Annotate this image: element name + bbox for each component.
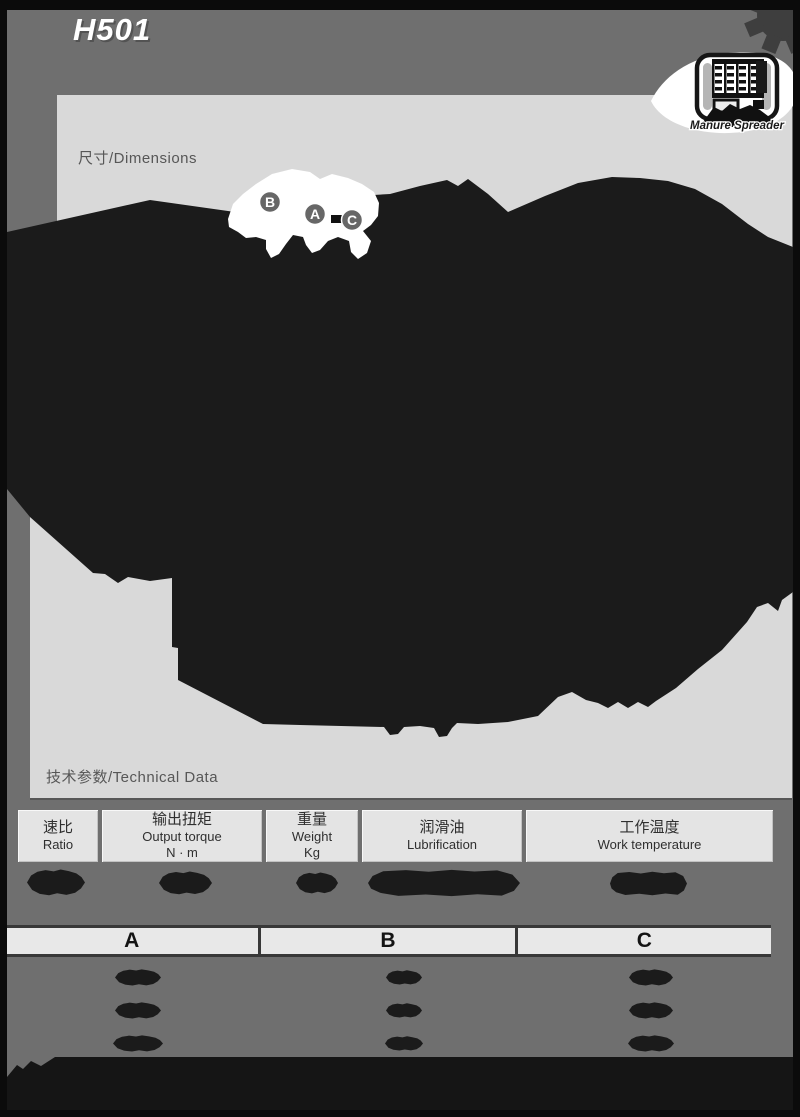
manure-spreader-badge: Manure Spreader xyxy=(651,52,798,133)
frame-left xyxy=(0,0,7,1117)
badge-label: Manure Spreader xyxy=(690,120,784,132)
lub-zh: 润滑油 xyxy=(419,819,464,837)
temp-en: Work temperature xyxy=(598,837,702,853)
weight-unit: Kg xyxy=(304,845,320,861)
callout-a: A xyxy=(305,204,326,225)
redacted-lubrification-value xyxy=(368,869,520,897)
temp-zh: 工作温度 xyxy=(619,819,679,837)
redacted-temperature-value xyxy=(610,871,687,896)
column-header-work-temperature: 工作温度 Work temperature xyxy=(526,810,773,862)
callout-a-label: A xyxy=(310,206,320,222)
callout-c-label: C xyxy=(347,212,357,228)
callout-b: B xyxy=(260,192,281,213)
column-header-lubrification: 润滑油 Lubrification xyxy=(362,810,522,862)
torque-unit: N · m xyxy=(166,845,198,861)
dim-column-b: B xyxy=(258,928,514,954)
dimension-table: A B C xyxy=(5,925,771,957)
weight-zh: 重量 xyxy=(297,811,327,829)
weight-en: Weight xyxy=(292,829,332,845)
bottom-band xyxy=(7,1057,793,1113)
dim-column-c: C xyxy=(515,928,771,954)
torque-zh: 输出扭矩 xyxy=(152,811,212,829)
column-header-output-torque: 输出扭矩 Output torque N · m xyxy=(102,810,262,862)
ratio-zh: 速比 xyxy=(43,819,73,837)
catalog-page: H501 尺寸/Dimensions 技术参数/Technical Data xyxy=(0,0,800,1117)
manure-spreader-icon xyxy=(697,55,777,127)
frame-bottom xyxy=(0,1110,800,1117)
torque-en: Output torque xyxy=(142,829,222,845)
callout-c: C xyxy=(342,210,363,231)
callout-b-label: B xyxy=(265,194,275,210)
dim-column-a: A xyxy=(5,928,258,954)
lub-en: Lubrification xyxy=(407,837,477,853)
ratio-en: Ratio xyxy=(43,837,73,853)
column-header-ratio: 速比 Ratio xyxy=(18,810,98,862)
column-header-weight: 重量 Weight Kg xyxy=(266,810,358,862)
technical-data-table: 速比 Ratio 输出扭矩 Output torque N · m 重量 Wei… xyxy=(18,810,773,862)
frame-top xyxy=(0,0,800,10)
callout-dash xyxy=(331,215,342,223)
drawing-silhouette xyxy=(7,177,793,737)
frame-right xyxy=(793,0,800,1117)
